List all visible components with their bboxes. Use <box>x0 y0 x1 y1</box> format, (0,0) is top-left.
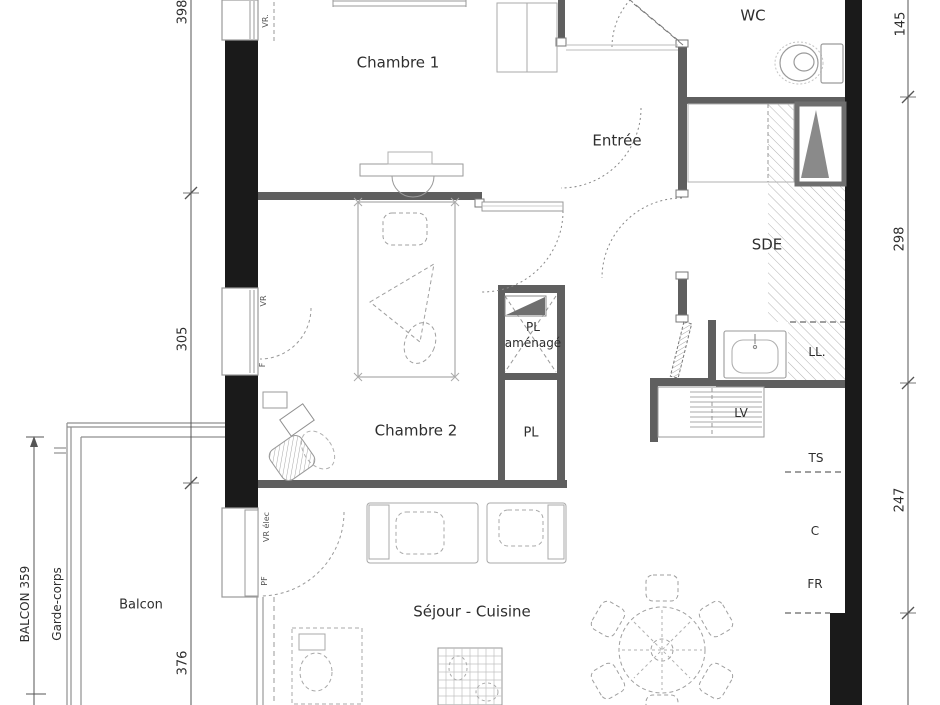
balcony-door <box>222 508 344 597</box>
sofa-right <box>487 503 566 563</box>
door-wc-leaf <box>634 4 683 45</box>
dim-label-247: 247 <box>894 488 907 513</box>
window-label-pf: PF <box>261 576 269 585</box>
door-sde-leaf <box>670 322 691 378</box>
wardrobe-chambre1 <box>497 3 557 72</box>
shower-icon <box>688 104 844 184</box>
door-chambre2-arc <box>482 211 563 292</box>
washbasin-icon <box>724 331 786 378</box>
dining-table <box>589 575 736 705</box>
appliance-label-lv: LV <box>734 407 748 419</box>
exterior-walls <box>225 0 862 705</box>
window-label-vr-top: VR. <box>262 14 270 27</box>
balcony-railing <box>54 423 225 705</box>
toilet-icon <box>775 42 843 84</box>
tv-unit <box>292 628 362 704</box>
room-label-chambre1: Chambre 1 <box>357 56 440 71</box>
wall-end-caps <box>475 38 688 322</box>
bed-chambre1 <box>333 0 466 7</box>
window-label-vr-elec: VR élec <box>263 512 271 542</box>
dim-label-298: 298 <box>894 227 907 252</box>
door-sde-arc <box>602 198 682 278</box>
room-label-balcon: Balcon <box>119 599 163 612</box>
appliance-label-fr: FR <box>807 578 822 590</box>
desk-chambre1 <box>360 152 463 197</box>
desk-chair-chambre2 <box>263 392 342 484</box>
closet-label-pl: PL <box>523 427 538 440</box>
room-label-entree: Entrée <box>592 134 641 149</box>
window-label-f-ch2: F <box>259 363 267 368</box>
dim-label-376: 376 <box>177 651 190 676</box>
closet-label-pl-amenage-2: aménagé <box>505 337 561 349</box>
closet-label-pl-amenage-1: PL <box>526 321 540 333</box>
dim-label-garde-corps: Garde-corps <box>51 567 63 640</box>
closet-pl-amenage <box>505 296 556 372</box>
door-chambre2-leaf <box>482 202 563 211</box>
door-wc-arc <box>612 0 630 47</box>
dim-label-305: 305 <box>177 327 190 352</box>
dim-label-balcon-359: BALCON 359 <box>19 566 31 643</box>
room-label-sejour-cuisine: Séjour - Cuisine <box>413 605 531 620</box>
door-arcs <box>482 0 683 292</box>
appliance-label-ll: LL. <box>808 346 825 358</box>
floor-plan: Chambre 1 Entrée WC SDE PL aménagé PL Ch… <box>0 0 940 705</box>
window-label-vr-ch2: VR <box>260 295 268 306</box>
sofa-left <box>367 503 478 563</box>
appliance-label-c: C <box>811 525 819 537</box>
room-label-chambre2: Chambre 2 <box>375 424 458 439</box>
appliance-zone-lines <box>785 472 845 613</box>
rug-grid <box>438 648 502 705</box>
bed-chambre2 <box>354 198 459 381</box>
dim-label-398: 398 <box>177 0 190 24</box>
room-label-wc: WC <box>740 9 765 24</box>
sejour-glazing <box>257 597 274 705</box>
room-label-sde: SDE <box>752 238 783 253</box>
appliance-label-ts: TS <box>809 452 824 464</box>
dim-label-145: 145 <box>895 12 908 37</box>
